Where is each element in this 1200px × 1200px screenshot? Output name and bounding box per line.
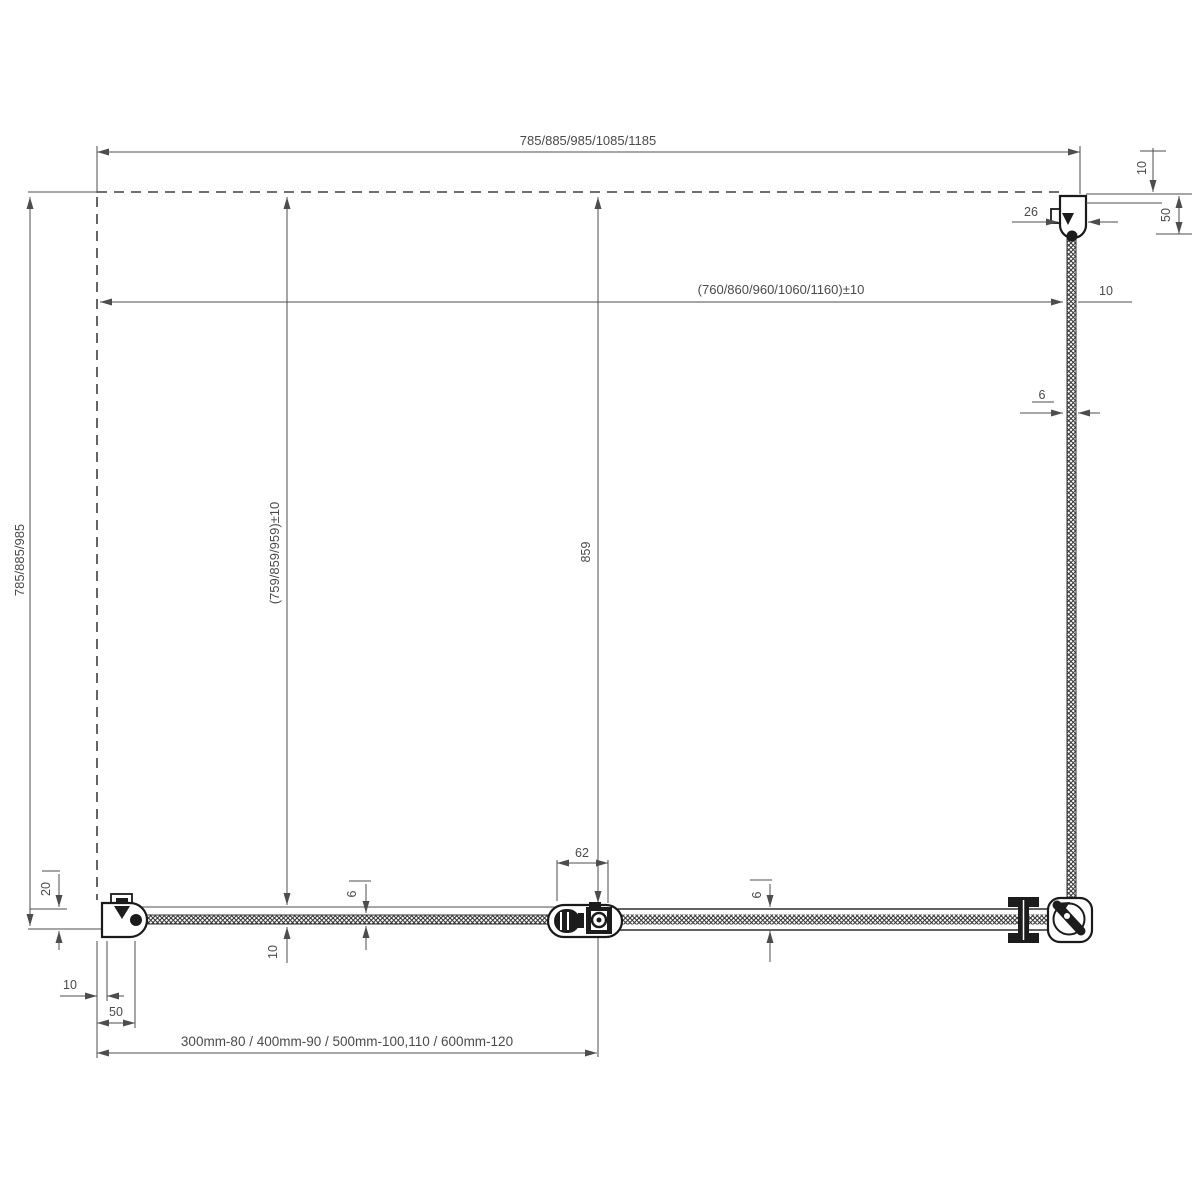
wall-gap-10-label: 10 [63,978,77,992]
profile-height-50-label: 50 [1159,208,1173,222]
drawing-canvas: 785/885/985/1085/1185 (760/860/960/1060/… [0,0,1200,1200]
profile-width-50-label: 50 [109,1005,123,1019]
door-edge-gap-dimension: 10 [266,927,287,963]
glass-thickness-right-dimension: 6 [1020,388,1100,413]
top-width-dimension: 785/885/985/1085/1185 [97,133,1080,194]
left-depth-dimension: 785/885/985 [12,197,143,929]
total-width-label: 785/885/985/1085/1185 [520,133,656,148]
total-depth-label: 785/885/985 [12,524,27,596]
side-gap-right-label: 10 [1099,284,1113,298]
center-hinge [548,902,622,937]
profile-offset-top-label: 10 [1135,161,1149,175]
hinge-62-dimension: 62 [557,846,608,903]
fixed-panel-width-label: 859 [579,542,593,563]
corner-connector [1048,898,1092,942]
glass-width-label: (760/860/960/1060/1160)±10 [698,282,865,297]
door-glass-panel [140,907,585,924]
reference-dashed-lines [28,192,1062,900]
glass-width-dimension: (760/860/960/1060/1160)±10 10 [100,282,1132,302]
wall-gap-20-dimension: 20 [39,871,60,950]
shower-enclosure-technical-drawing: 785/885/985/1085/1185 (760/860/960/1060/… [0,0,1200,1200]
door-glass-thickness-label: 6 [345,890,359,897]
top-right-wall-profile [1051,196,1086,242]
profile-offset-dimensions-right: 10 50 [1086,148,1192,234]
bottom-left-wall-profile [30,894,147,937]
extension-profiles-label: 300mm-80 / 400mm-90 / 500mm-100,110 / 60… [181,1034,513,1049]
right-fixed-glass-panel [1067,233,1076,910]
bottom-extension-dimension: 300mm-80 / 400mm-90 / 500mm-100,110 / 60… [97,1034,597,1053]
fixed-glass-thickness-label: 6 [750,891,764,898]
door-width-label: (759/859/959)±10 [267,502,282,605]
bottom-fixed-glass-panel [618,909,1048,930]
door-edge-gap-label: 10 [266,945,280,959]
glass-thickness-side-label: 6 [1039,388,1046,402]
hinge-width-label: 62 [575,846,589,860]
bottom-left-dimensions: 10 50 [60,941,135,1058]
door-width-dimension: (759/859/959)±10 [267,197,287,905]
wall-gap-20-label: 20 [39,882,53,896]
profile-width-26-label: 26 [1024,205,1038,219]
